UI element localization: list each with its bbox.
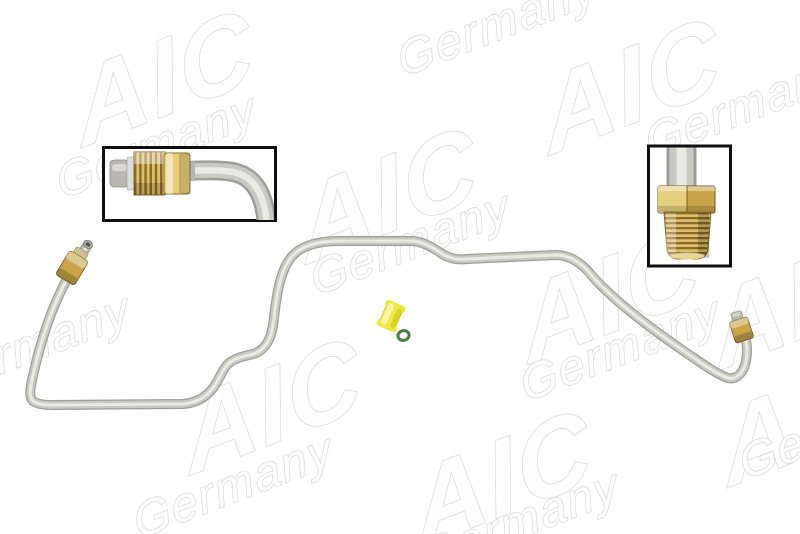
right-inset-callout — [649, 145, 731, 266]
hex-top-highlight — [658, 186, 715, 191]
hex-facet-shadow — [181, 153, 190, 194]
thread-shadow — [134, 183, 165, 195]
plug-highlight — [666, 213, 676, 258]
left-inset-callout — [104, 148, 276, 227]
nub-highlight — [112, 164, 127, 171]
product-photo-canvas: AIC AIC AIC AIC AIC AIC AIC AIC Germany … — [0, 0, 800, 534]
plug-shadow — [698, 213, 709, 258]
hex-facet-highlight — [166, 153, 173, 194]
thread-highlight — [134, 152, 165, 164]
plug-bottom-rim — [671, 253, 705, 260]
product-photo: AIC AIC AIC AIC AIC AIC AIC AIC Germany … — [0, 0, 800, 534]
